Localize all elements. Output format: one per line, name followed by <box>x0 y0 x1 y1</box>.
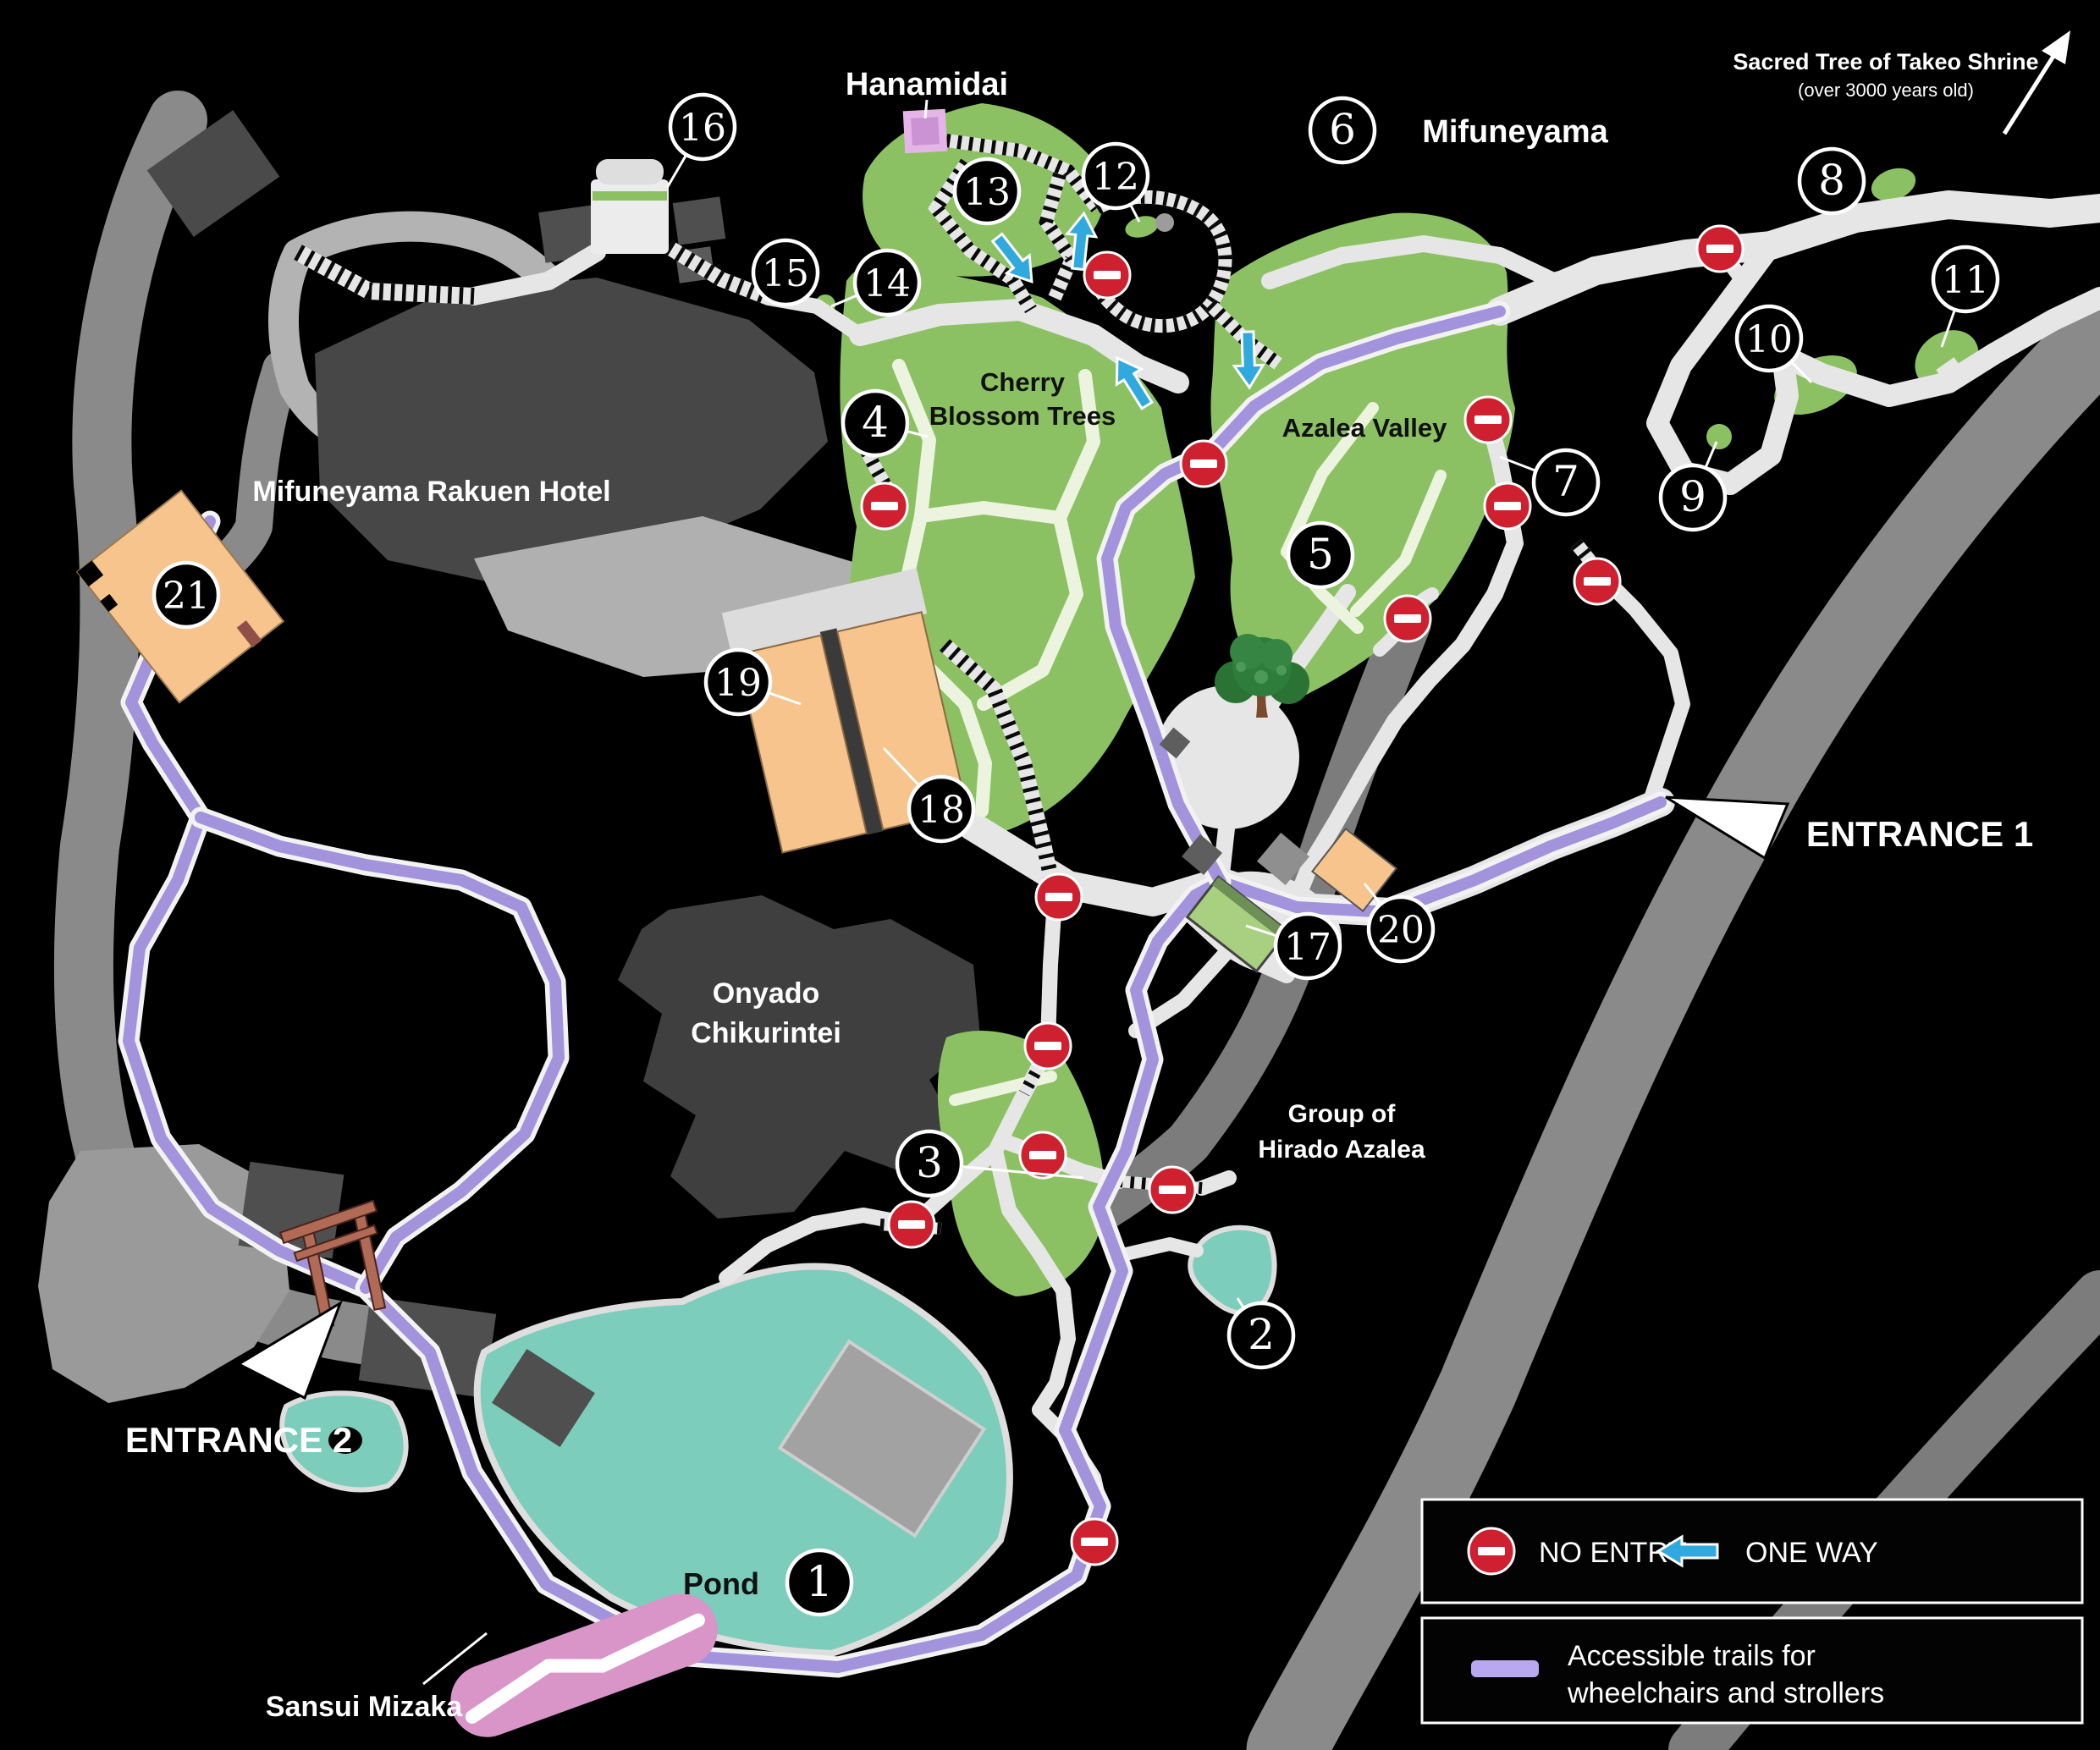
svg-text:6: 6 <box>1329 105 1356 154</box>
label-cherry-line1: Cherry <box>980 367 1066 397</box>
legend-trail-label-1: Accessible trails for <box>1568 1640 1816 1672</box>
label-azalea-valley: Azalea Valley <box>1282 413 1448 443</box>
no-entry-icon <box>1084 252 1130 298</box>
no-entry-icon <box>1149 1167 1195 1213</box>
no-entry-icon <box>1072 1519 1117 1565</box>
no-entry-icon <box>1385 596 1430 641</box>
marker-1: 1 <box>787 1550 852 1615</box>
label-sansui-mizaka: Sansui Mizaka <box>266 1691 464 1723</box>
no-entry-icon <box>1181 441 1226 487</box>
svg-text:21: 21 <box>163 575 210 618</box>
marker-5: 5 <box>1288 523 1353 587</box>
trail-swatch <box>1471 1660 1539 1677</box>
no-entry-icon <box>1469 1528 1514 1574</box>
svg-text:8: 8 <box>1818 156 1845 205</box>
label-hotel: Mifuneyama Rakuen Hotel <box>252 476 610 508</box>
svg-text:4: 4 <box>862 398 889 447</box>
small-gray-dot <box>1155 213 1174 232</box>
no-entry-icon <box>1025 1023 1071 1069</box>
label-entrance-2: ENTRANCE 2 <box>125 1420 352 1460</box>
no-entry-icon <box>889 1202 934 1247</box>
label-mifuneyama: Mifuneyama <box>1422 114 1608 150</box>
svg-text:9: 9 <box>1679 472 1706 521</box>
svg-text:13: 13 <box>963 171 1011 214</box>
no-entry-icon <box>1465 397 1511 443</box>
marker-15: 15 <box>753 240 818 305</box>
no-entry-icon <box>1485 483 1530 529</box>
marker-21: 21 <box>154 563 218 627</box>
svg-text:18: 18 <box>918 789 965 832</box>
no-entry-icon <box>1697 226 1743 272</box>
no-entry-icon <box>1036 874 1082 920</box>
label-hanamidai: Hanamidai <box>846 67 1008 102</box>
svg-text:16: 16 <box>679 107 726 150</box>
label-cherry-line2: Blossom Trees <box>929 401 1116 431</box>
svg-text:7: 7 <box>1552 457 1579 506</box>
svg-text:2: 2 <box>1248 1310 1275 1359</box>
legend-one-way-label: ONE WAY <box>1745 1537 1878 1569</box>
svg-text:15: 15 <box>762 252 809 295</box>
svg-text:11: 11 <box>1942 259 1989 302</box>
label-sacred-tree-line2: (over 3000 years old) <box>1798 80 1974 101</box>
legend-trail-label-2: wheelchairs and strollers <box>1567 1677 1884 1709</box>
svg-text:5: 5 <box>1307 530 1334 579</box>
svg-text:14: 14 <box>863 262 911 305</box>
svg-text:17: 17 <box>1284 926 1331 969</box>
no-entry-icon <box>1574 559 1620 604</box>
label-pond: Pond <box>683 1566 759 1601</box>
svg-text:20: 20 <box>1377 909 1425 952</box>
marker-13: 13 <box>955 159 1019 223</box>
label-onyado-line1: Onyado <box>713 977 820 1010</box>
marker-6: 6 <box>1310 98 1375 162</box>
no-entry-icon <box>862 483 907 529</box>
label-hirado-line2: Hirado Azalea <box>1258 1136 1425 1164</box>
marker-8: 8 <box>1800 149 1864 213</box>
svg-text:12: 12 <box>1092 156 1139 199</box>
svg-text:3: 3 <box>916 1138 943 1187</box>
label-onyado-line2: Chikurintei <box>691 1017 841 1049</box>
label-entrance-1: ENTRANCE 1 <box>1806 814 2033 854</box>
no-entry-icon <box>1020 1132 1066 1178</box>
svg-text:19: 19 <box>714 662 762 705</box>
label-sacred-tree-line1: Sacred Tree of Takeo Shrine <box>1733 49 2038 74</box>
building-16 <box>591 159 669 254</box>
svg-text:10: 10 <box>1745 318 1793 361</box>
park-map: HanamidaiMifuneyamaSacred Tree of Takeo … <box>0 0 2100 1750</box>
label-hirado-line1: Group of <box>1288 1100 1397 1128</box>
svg-text:1: 1 <box>806 1557 833 1606</box>
